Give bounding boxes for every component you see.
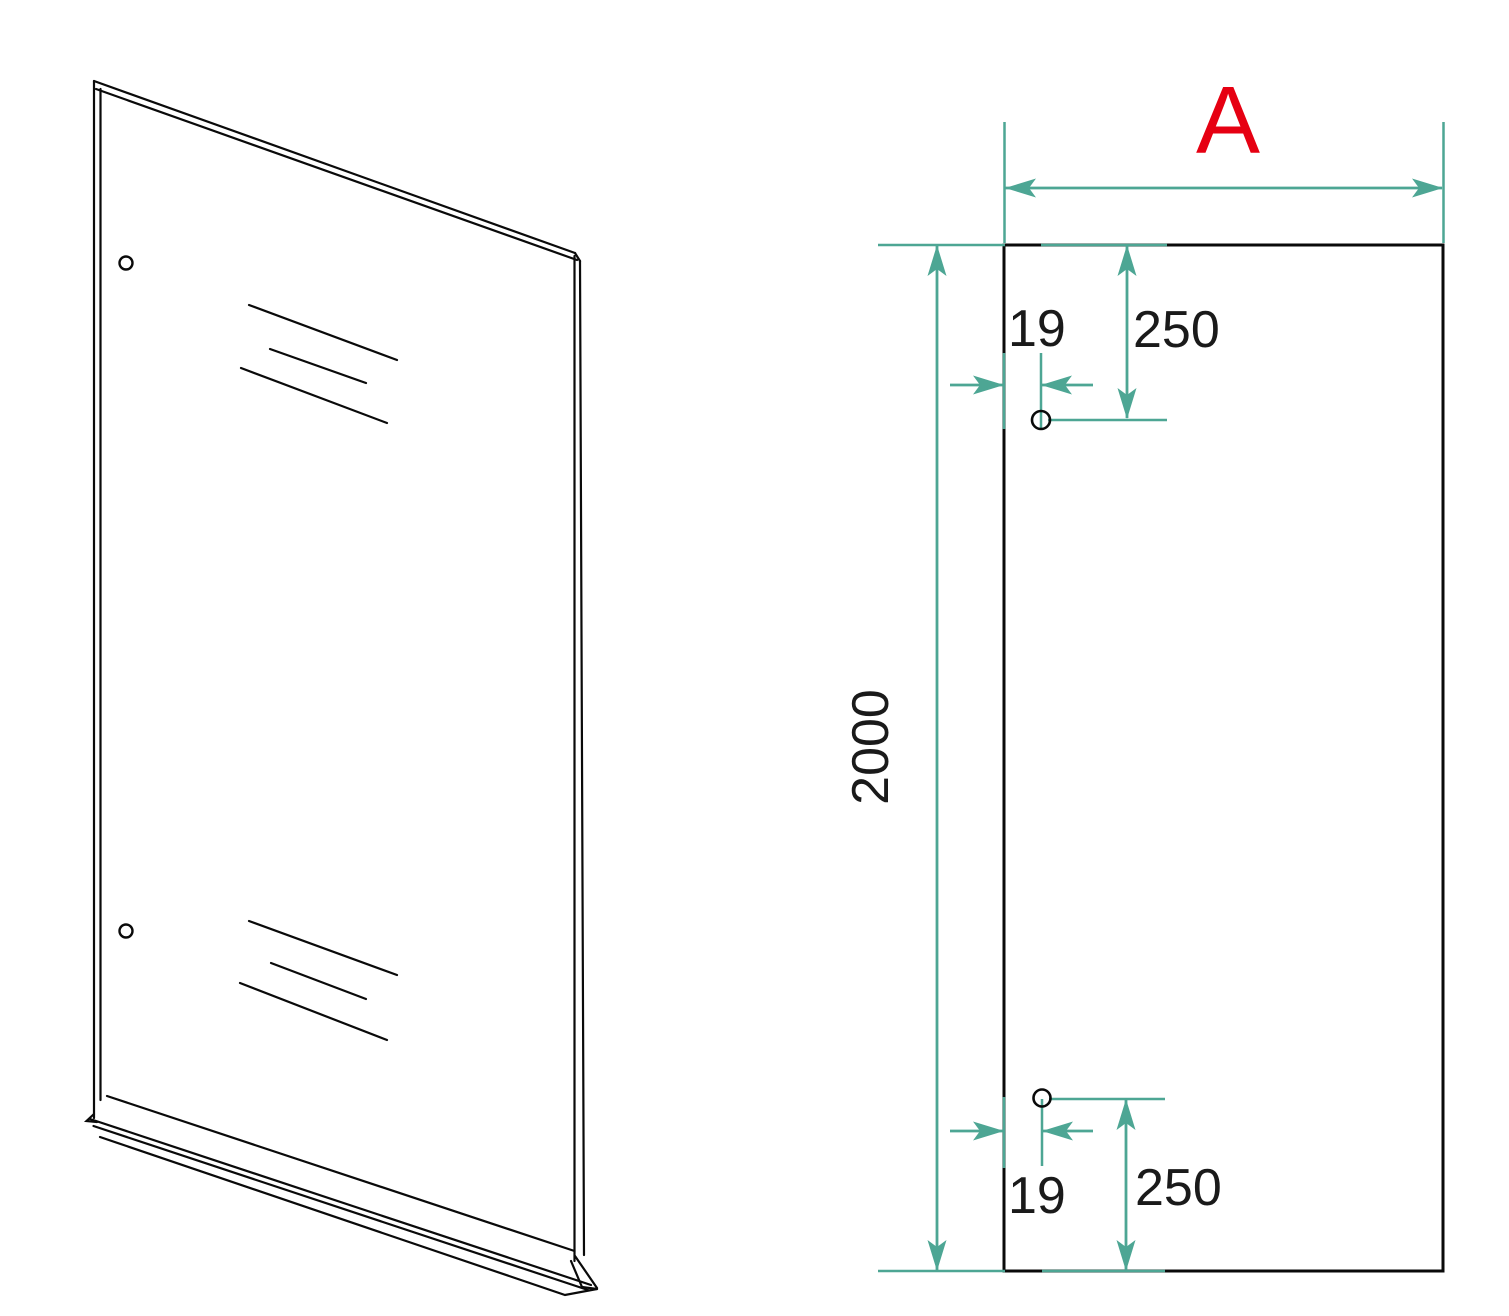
base-channel [87,1096,598,1295]
front-view: A 2000 19 250 [842,67,1444,1271]
top-hole-dimensions: 19 250 [950,245,1220,429]
bottom-hole-dimensions: 19 250 [950,1090,1222,1272]
isometric-view [87,81,598,1295]
glass-panel-outline [94,81,584,1261]
reflection-line [271,963,366,999]
reflection-line [249,921,397,975]
technical-drawing-canvas: A 2000 19 250 [0,0,1509,1316]
drawing-svg: A 2000 19 250 [0,0,1509,1316]
iso-bottom-mounting-hole [120,925,133,938]
channel-left-flare [87,1114,98,1122]
channel-bottom-line [100,1137,597,1295]
reflection-line [249,305,397,360]
panel-top-edge-outer [94,81,575,253]
dim-height-2000: 2000 [842,245,1005,1271]
reflection-line [270,349,366,383]
reflection-marks-bottom [240,921,397,1040]
dim-height-label: 2000 [842,689,900,805]
channel-groove-line-2 [94,1126,589,1290]
dim-19-bottom-label: 19 [1008,1167,1066,1225]
panel-top-edge-inner [96,89,577,260]
panel-outline-rect [1004,245,1443,1271]
dim-250-bottom-label: 250 [1135,1159,1222,1217]
iso-top-mounting-hole [120,257,133,270]
reflection-line [241,368,387,423]
dim-width-A: A [1005,67,1444,243]
channel-groove-line-1 [90,1119,591,1285]
reflection-marks-top [241,305,397,423]
reflection-line [240,983,387,1040]
panel-right-edge-outer [580,261,584,1255]
dim-width-label: A [1196,67,1260,174]
dim-250-top-label: 250 [1133,301,1220,359]
channel-top-line [107,1096,575,1251]
dim-19-top-label: 19 [1008,300,1066,358]
